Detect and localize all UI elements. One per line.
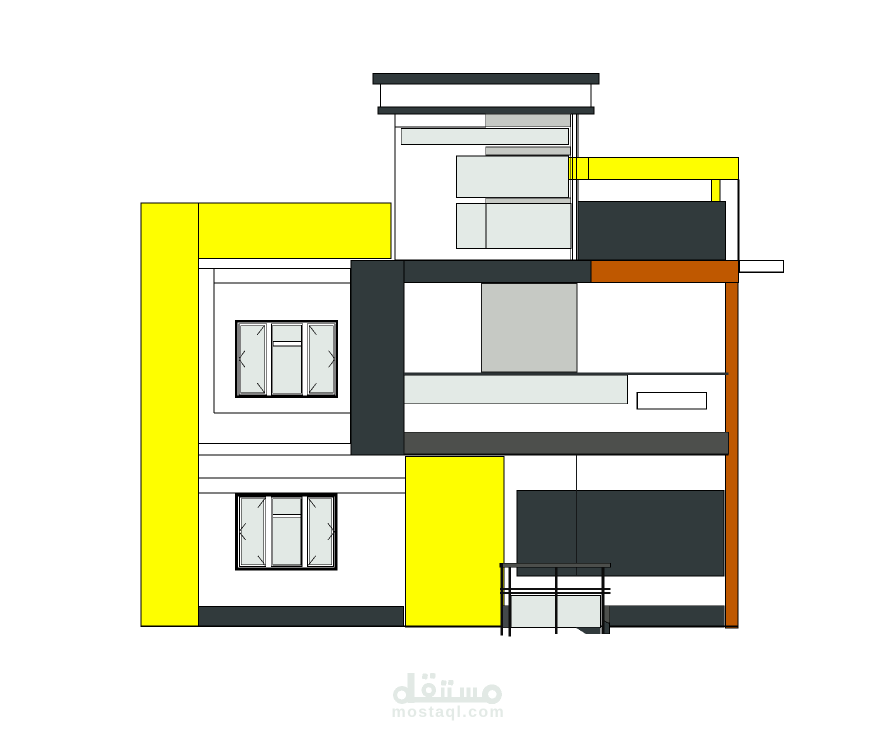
svg-text:mostaql.com: mostaql.com	[392, 704, 506, 721]
